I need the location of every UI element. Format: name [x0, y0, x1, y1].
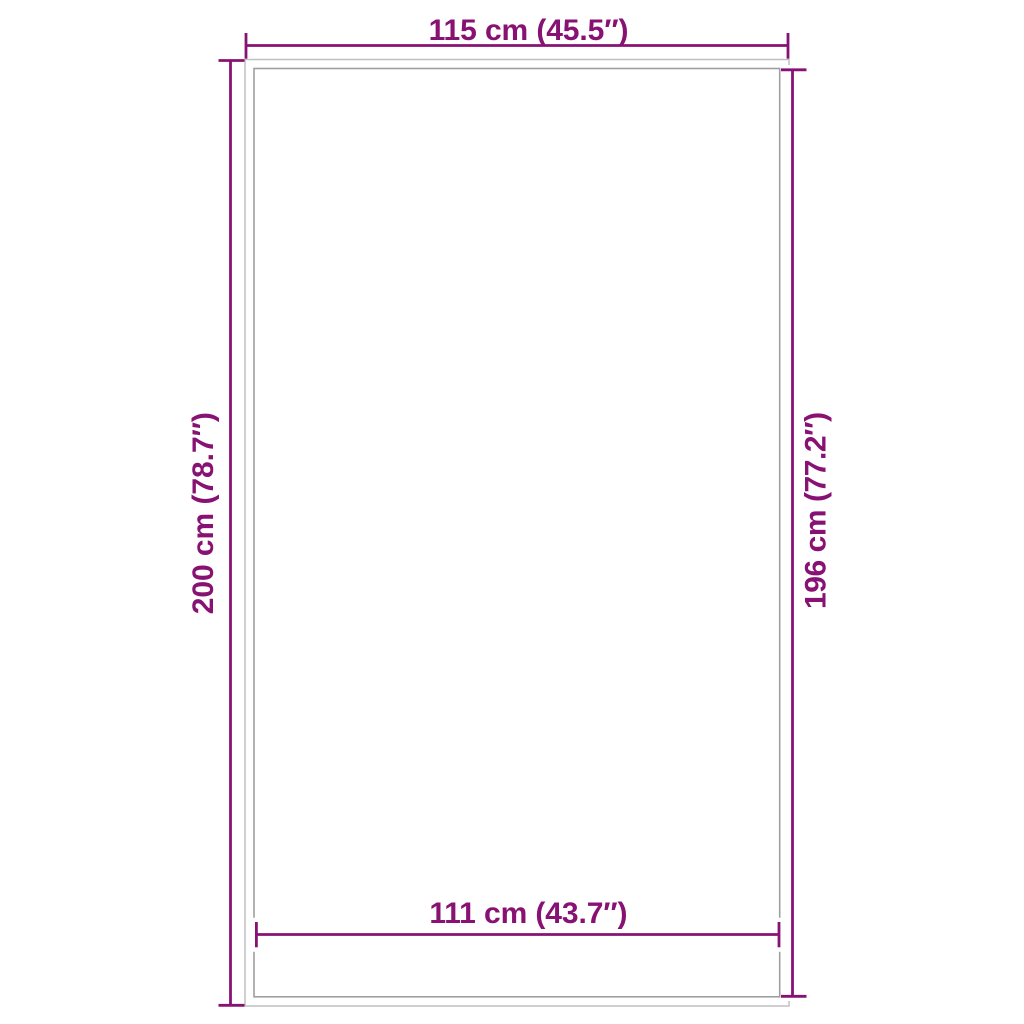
svg-text:196 cm (77.2″): 196 cm (77.2″) [800, 412, 833, 609]
svg-text:115 cm (45.5″): 115 cm (45.5″) [429, 14, 629, 47]
svg-text:200 cm (78.7″): 200 cm (78.7″) [187, 412, 220, 614]
svg-text:111 cm (43.7″): 111 cm (43.7″) [429, 897, 627, 930]
